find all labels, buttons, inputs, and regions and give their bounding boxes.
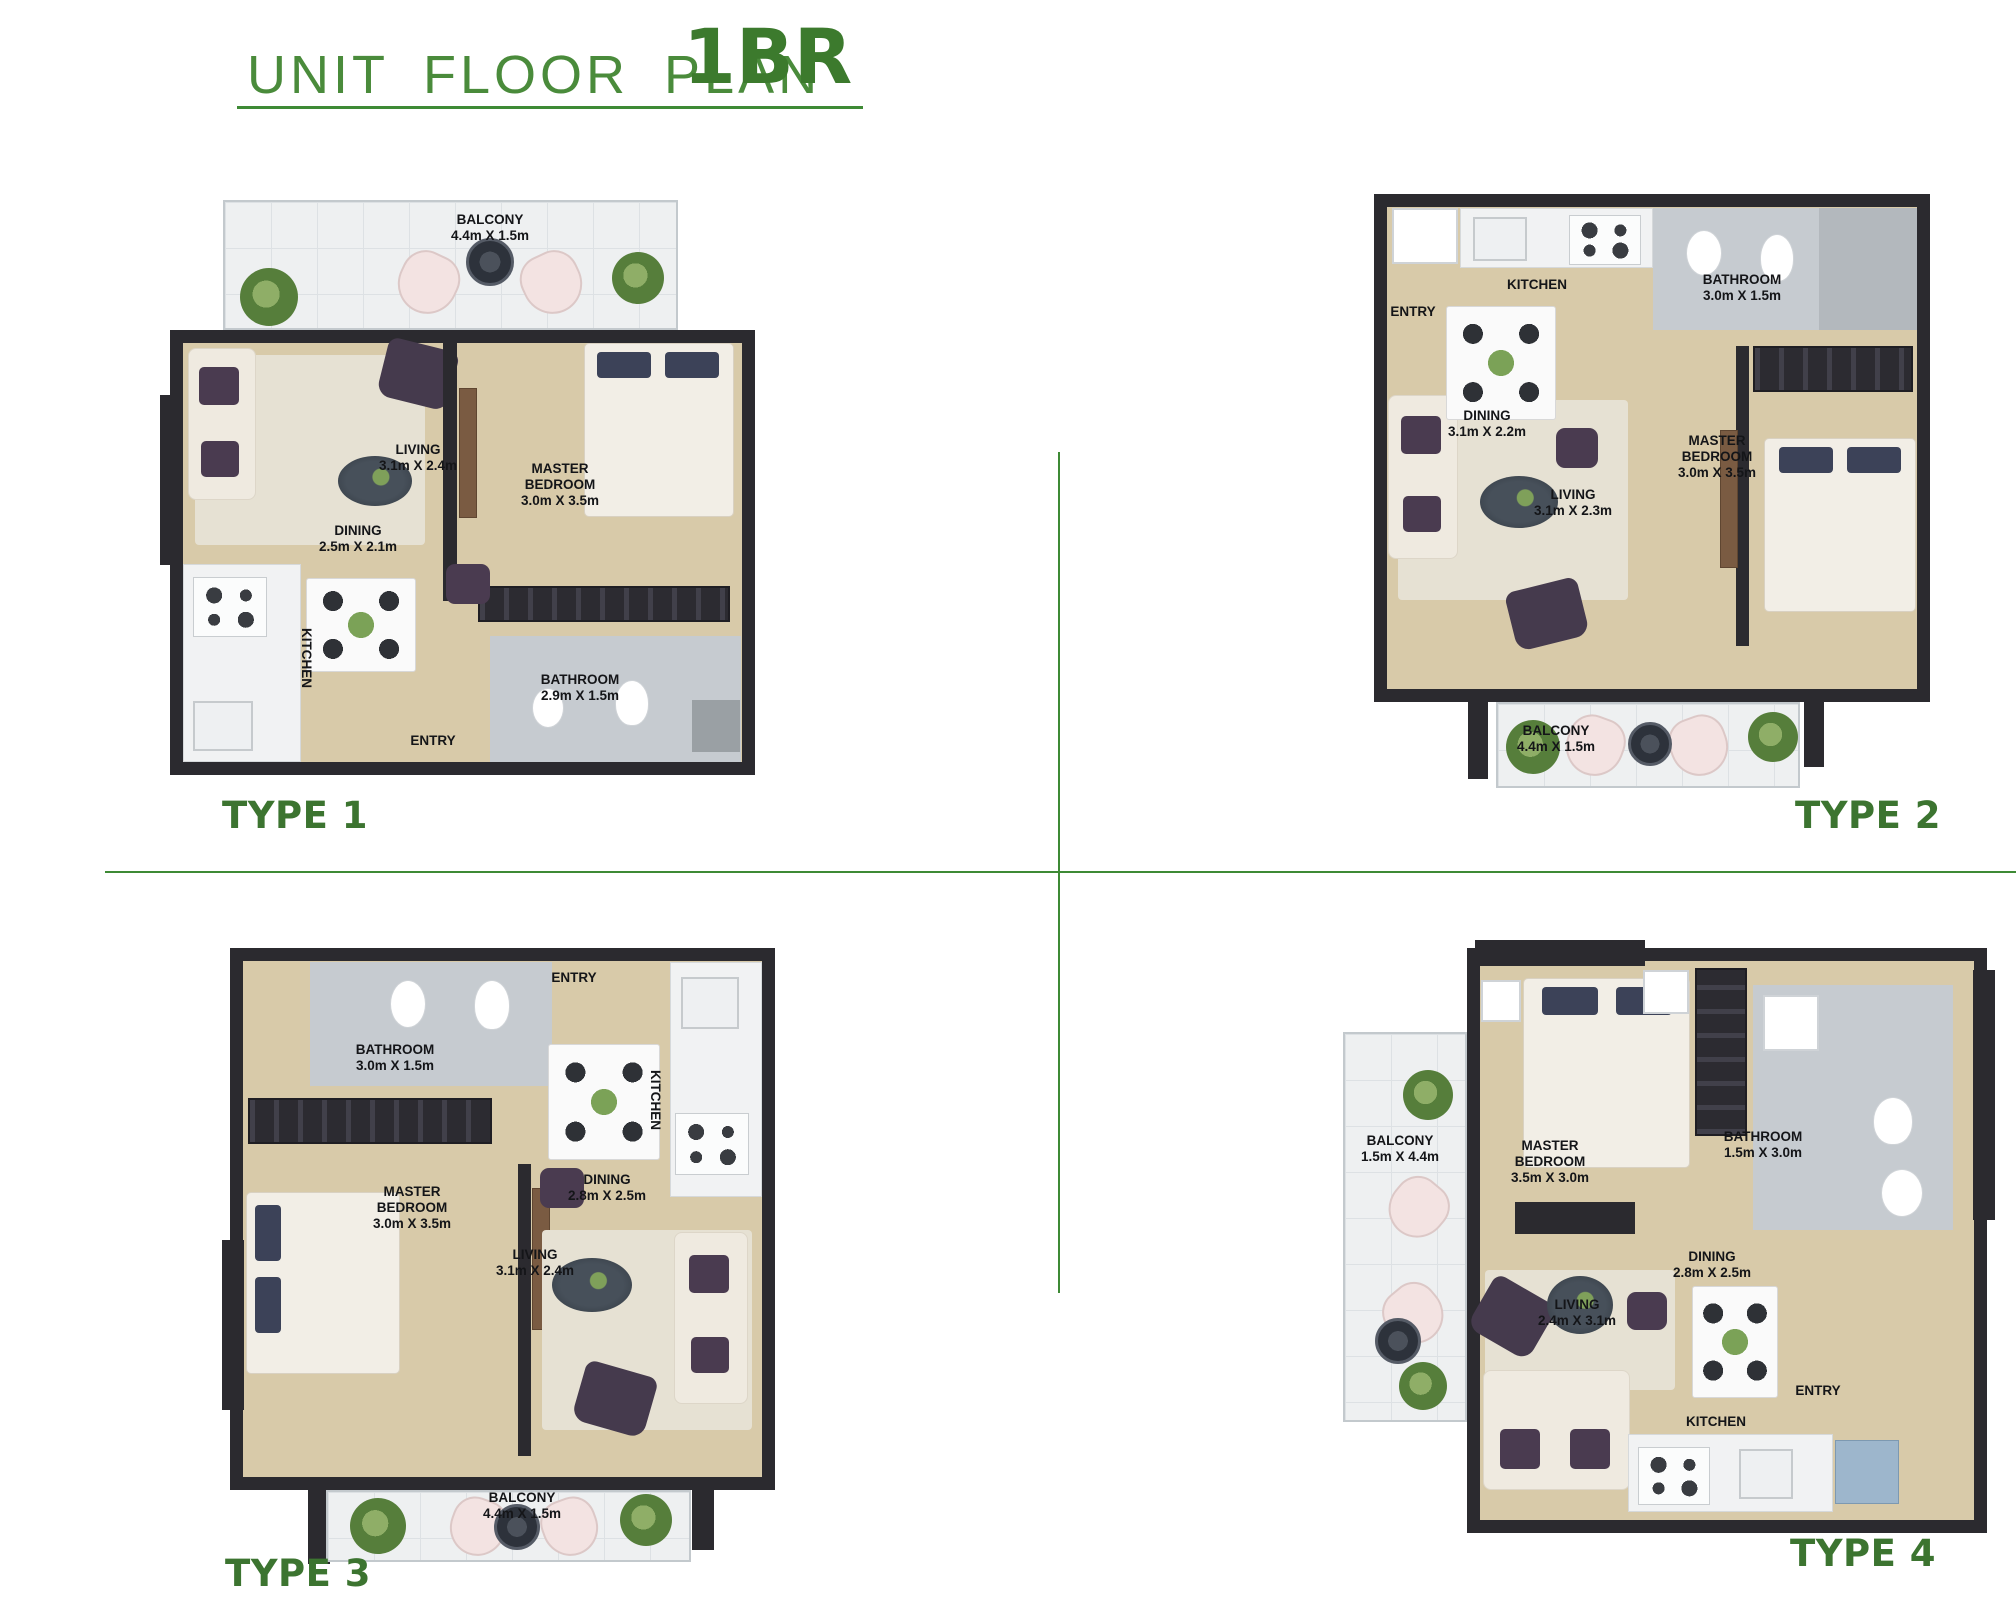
unit-type-badge: 1BR	[683, 12, 852, 101]
section-divider-horizontal	[105, 871, 2016, 873]
fridge	[1392, 208, 1458, 264]
shower	[1819, 208, 1917, 330]
plan-type-label: TYPE 3	[225, 1552, 371, 1595]
plant	[612, 252, 664, 304]
room-label-bathroom: BATHROOM 2.9m X 1.5m	[541, 672, 620, 704]
floor-plan-type-4: BALCONY 1.5m X 4.4m MASTER BEDROOM 3.5m …	[1335, 940, 1995, 1550]
room-label-bathroom: BATHROOM 3.0m X 1.5m	[1703, 272, 1782, 304]
wall	[160, 395, 182, 565]
kitchen-floor	[1460, 208, 1653, 268]
room-label-living: LIVING 2.4m X 3.1m	[1538, 1297, 1616, 1329]
round-table	[1628, 722, 1672, 766]
sofa-cushion	[1500, 1429, 1540, 1469]
stove	[1569, 215, 1641, 265]
plan-type-label: TYPE 1	[222, 794, 368, 837]
room-label-entry: ENTRY	[410, 733, 455, 749]
kitchen-floor	[670, 962, 762, 1197]
room-label-bathroom: BATHROOM 3.0m X 1.5m	[356, 1042, 435, 1074]
room-label-balcony: BALCONY 1.5m X 4.4m	[1361, 1133, 1439, 1165]
floor-plan-type-3: BATHROOM 3.0m X 1.5m ENTRY KITCHEN MASTE…	[222, 940, 782, 1570]
dining-table	[1692, 1286, 1778, 1398]
plan-type-label: TYPE 4	[1790, 1532, 1936, 1575]
sofa-cushion	[1401, 416, 1441, 454]
plant	[620, 1494, 672, 1546]
wardrobe	[478, 586, 730, 622]
room-label-master-bedroom: MASTER BEDROOM 3.0m X 3.5m	[1654, 433, 1780, 481]
balcony-chair	[388, 242, 469, 324]
pillow	[1847, 447, 1901, 473]
wall	[692, 1484, 714, 1550]
sofa-cushion	[199, 367, 239, 405]
sofa-cushion	[691, 1337, 729, 1373]
pouf	[1556, 428, 1598, 468]
storage-box	[692, 700, 740, 752]
kitchen-floor	[1628, 1434, 1833, 1512]
kitchen-floor	[183, 564, 301, 762]
dresser	[1643, 970, 1689, 1014]
round-table	[1375, 1318, 1421, 1364]
room-label-balcony: BALCONY 4.4m X 1.5m	[483, 1490, 561, 1522]
shower	[1763, 995, 1819, 1051]
balcony-floor	[1343, 1032, 1467, 1422]
pillow	[255, 1277, 281, 1333]
room-label-dining: DINING 2.8m X 2.5m	[568, 1172, 646, 1204]
nightstand	[1481, 980, 1521, 1022]
room-label-dining: DINING 2.8m X 2.5m	[1673, 1249, 1751, 1281]
room-label-kitchen: KITCHEN	[1507, 277, 1567, 293]
sink	[1881, 1169, 1923, 1217]
plant	[240, 268, 298, 326]
room-label-balcony: BALCONY 4.4m X 1.5m	[451, 212, 529, 244]
pillow	[1779, 447, 1833, 473]
pillow	[597, 352, 651, 378]
room-label-living: LIVING 3.1m X 2.4m	[496, 1247, 574, 1279]
sofa-cushion	[1570, 1429, 1610, 1469]
plant	[1399, 1362, 1447, 1410]
wardrobe	[1753, 346, 1913, 392]
pillow	[255, 1205, 281, 1261]
dining-table	[548, 1044, 660, 1160]
wall	[222, 1240, 244, 1410]
kitchen-sink	[1739, 1449, 1793, 1499]
plant	[1403, 1070, 1453, 1120]
pillow	[665, 352, 719, 378]
plant	[350, 1498, 406, 1554]
kitchen-sink	[681, 977, 739, 1029]
bed	[1764, 438, 1916, 612]
toilet	[1873, 1097, 1913, 1145]
plan-type-label: TYPE 2	[1795, 794, 1941, 837]
sink-cabinet	[1835, 1440, 1899, 1504]
toilet	[474, 980, 510, 1030]
title-underline	[237, 106, 863, 109]
balcony-chair	[1377, 1166, 1460, 1249]
dining-table	[306, 578, 416, 672]
wall	[1475, 940, 1645, 966]
room-label-master-bedroom: MASTER BEDROOM 3.0m X 3.5m	[497, 461, 623, 509]
room-label-kitchen: KITCHEN	[1686, 1414, 1746, 1430]
bathroom-floor	[1753, 985, 1953, 1230]
toilet	[615, 680, 649, 726]
sofa	[1483, 1370, 1630, 1490]
room-label-kitchen: KITCHEN	[298, 628, 314, 688]
pouf	[1627, 1292, 1667, 1330]
room-label-entry: ENTRY	[1795, 1383, 1840, 1399]
floor-plan-type-1: BALCONY 4.4m X 1.5m LIVING 3.1m X 2.4m M…	[160, 140, 760, 790]
wall	[1468, 695, 1488, 779]
sofa-cushion	[689, 1255, 729, 1293]
pillow	[1542, 987, 1598, 1015]
sink	[390, 980, 426, 1028]
room-label-dining: DINING 3.1m X 2.2m	[1448, 408, 1526, 440]
wall	[1804, 695, 1824, 767]
tv-wall	[1515, 1202, 1635, 1234]
bathroom-floor	[1653, 208, 1819, 330]
wardrobe	[1695, 968, 1747, 1136]
sink	[1686, 230, 1722, 276]
kitchen-sink	[1473, 217, 1527, 261]
media-console	[459, 388, 477, 518]
room-label-living: LIVING 3.1m X 2.4m	[379, 442, 457, 474]
plant	[1748, 712, 1798, 762]
balcony-chair	[512, 242, 593, 324]
room-label-balcony: BALCONY 4.4m X 1.5m	[1517, 723, 1595, 755]
partition-wall	[518, 1164, 531, 1456]
wardrobe	[248, 1098, 492, 1144]
kitchen-sink	[193, 701, 253, 751]
wall	[1973, 970, 1995, 1220]
floor-plan-type-2: ENTRY KITCHEN BATHROOM 3.0m X 1.5m DININ…	[1368, 190, 1936, 802]
stove	[193, 577, 267, 637]
room-label-kitchen: KITCHEN	[647, 1070, 663, 1130]
room-label-entry: ENTRY	[551, 970, 596, 986]
room-label-living: LIVING 3.1m X 2.3m	[1534, 487, 1612, 519]
sofa-cushion	[201, 441, 239, 477]
balcony-chair	[1661, 708, 1736, 784]
stove	[675, 1113, 749, 1175]
round-table	[466, 238, 514, 286]
sofa	[188, 348, 256, 500]
stove	[1638, 1447, 1710, 1505]
sofa	[674, 1232, 748, 1404]
room-label-master-bedroom: MASTER BEDROOM 3.5m X 3.0m	[1487, 1138, 1613, 1186]
dining-table	[1446, 306, 1556, 420]
floor-plan-sheet: UNIT FLOOR PLAN 1BR	[0, 0, 2016, 1608]
room-label-bathroom: BATHROOM 1.5m X 3.0m	[1724, 1129, 1803, 1161]
sofa-cushion	[1403, 496, 1441, 532]
room-label-master-bedroom: MASTER BEDROOM 3.0m X 3.5m	[349, 1184, 475, 1232]
room-label-dining: DINING 2.5m X 2.1m	[319, 523, 397, 555]
room-label-entry: ENTRY	[1390, 304, 1435, 320]
pouf	[446, 564, 490, 604]
